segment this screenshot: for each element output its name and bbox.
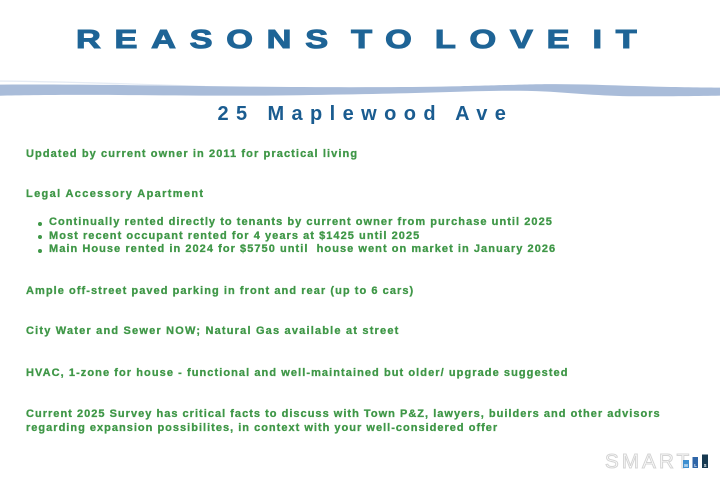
svg-text:M: M <box>684 463 688 468</box>
svg-text:S: S <box>704 463 707 468</box>
svg-text:L: L <box>694 463 697 468</box>
svg-text:SMART: SMART <box>605 450 692 473</box>
